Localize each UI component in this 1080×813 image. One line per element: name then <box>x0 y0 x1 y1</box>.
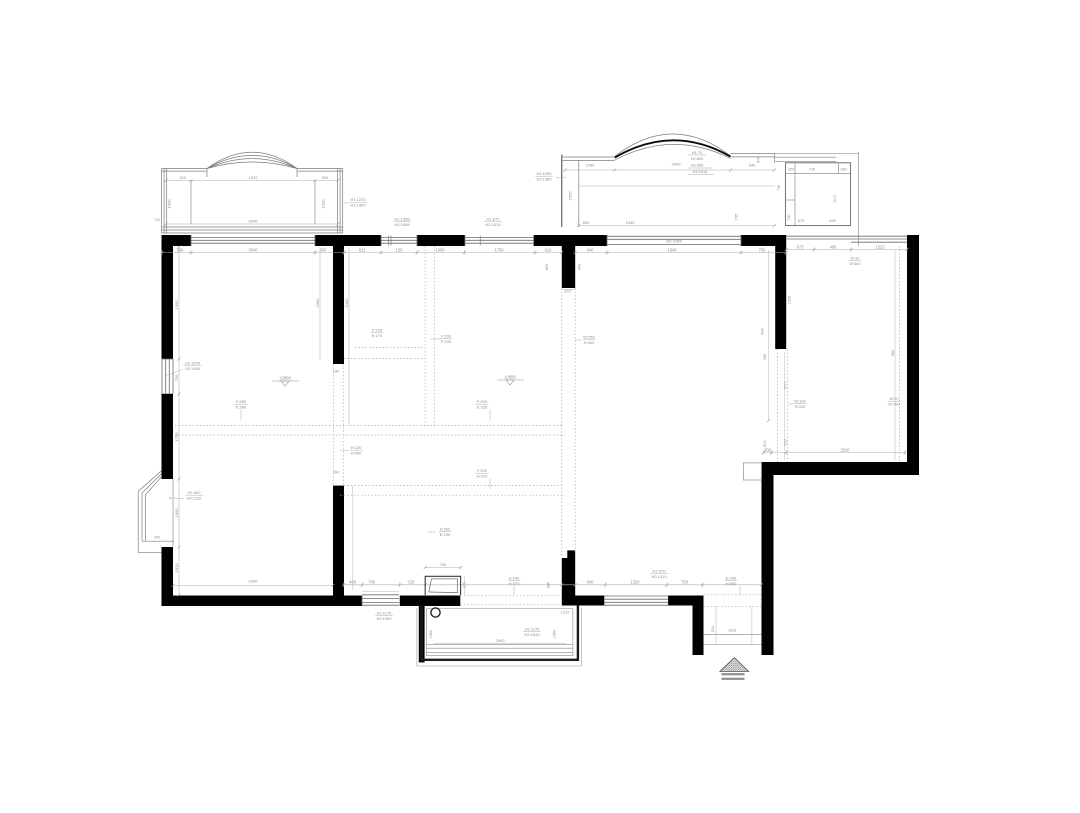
svg-text:613: 613 <box>763 441 767 447</box>
svg-text:300: 300 <box>320 247 328 252</box>
svg-text:W:30: W:30 <box>850 256 860 261</box>
svg-text:H3:980: H3:980 <box>691 163 704 168</box>
svg-text:H2:1300: H2:1300 <box>185 366 201 371</box>
svg-text:750: 750 <box>681 580 689 585</box>
svg-text:1390: 1390 <box>788 296 792 304</box>
svg-text:H2:1540: H2:1540 <box>524 632 540 637</box>
svg-text:611: 611 <box>359 247 366 252</box>
svg-text:673: 673 <box>757 157 761 163</box>
svg-text:H:320: H:320 <box>477 474 488 479</box>
svg-text:H1:970: H1:970 <box>653 569 667 574</box>
svg-text:H:370: H:370 <box>509 581 520 586</box>
svg-text:750: 750 <box>174 374 179 381</box>
svg-text:1000: 1000 <box>321 199 326 209</box>
svg-text:1112: 1112 <box>833 195 837 203</box>
svg-text:H1:1223: H1:1223 <box>350 197 366 202</box>
svg-text:H:325: H:325 <box>795 404 806 409</box>
svg-text:F:200: F:200 <box>477 468 488 473</box>
svg-text:F:230: F:230 <box>441 339 452 344</box>
svg-text:2940: 2940 <box>496 638 506 643</box>
svg-text:640: 640 <box>587 247 595 252</box>
svg-text:1810: 1810 <box>174 563 179 573</box>
svg-text:900: 900 <box>578 264 582 270</box>
svg-text:650: 650 <box>583 220 590 225</box>
svg-text:2640: 2640 <box>672 162 682 167</box>
svg-text:800: 800 <box>545 264 549 270</box>
svg-text:F:200: F:200 <box>477 399 488 404</box>
svg-text:1950: 1950 <box>553 630 557 638</box>
svg-text:200: 200 <box>333 470 340 475</box>
svg-text:1650: 1650 <box>568 191 573 201</box>
svg-text:H:400: H:400 <box>351 451 362 456</box>
svg-text:F:200: F:200 <box>441 334 452 339</box>
svg-text:W:300: W:300 <box>888 402 900 407</box>
svg-text:H:580: H:580 <box>726 581 737 586</box>
svg-text:H1:1170: H1:1170 <box>377 611 393 616</box>
svg-text:F:220: F:220 <box>372 328 383 333</box>
svg-text:150: 150 <box>396 247 404 252</box>
svg-text:H1:900: H1:900 <box>188 490 202 495</box>
svg-text:H2:1360: H2:1360 <box>350 203 366 208</box>
svg-text:1790: 1790 <box>174 432 179 442</box>
svg-text:H2:1360: H2:1360 <box>536 177 552 182</box>
svg-text:739: 739 <box>777 185 781 191</box>
svg-text:710: 710 <box>809 168 815 172</box>
svg-text:W1:2950: W1:2950 <box>666 239 683 244</box>
svg-text:280: 280 <box>840 168 846 172</box>
svg-text:H:200: H:200 <box>440 527 451 532</box>
svg-text:673: 673 <box>798 219 804 223</box>
svg-text:1310: 1310 <box>561 611 569 615</box>
svg-text:E:325: E:325 <box>477 405 488 410</box>
svg-text:2400: 2400 <box>344 298 349 308</box>
svg-text:H4:1318: H4:1318 <box>693 169 708 174</box>
svg-text:H:220: H:220 <box>351 445 362 450</box>
svg-text:300: 300 <box>154 536 160 540</box>
svg-text:900: 900 <box>322 175 329 180</box>
svg-text:1118: 1118 <box>728 629 736 633</box>
svg-text:1940: 1940 <box>626 220 636 225</box>
svg-text:F:280: F:280 <box>236 399 247 404</box>
svg-text:3040: 3040 <box>249 219 259 224</box>
svg-text:H2:1510: H2:1510 <box>485 222 501 227</box>
svg-text:H1:670: H1:670 <box>487 217 501 222</box>
svg-text:1000: 1000 <box>167 199 172 209</box>
svg-text:H2:1950: H2:1950 <box>376 616 392 621</box>
svg-text:1970: 1970 <box>249 175 259 180</box>
svg-text:H:400: H:400 <box>584 340 595 345</box>
svg-text:1400: 1400 <box>174 508 179 518</box>
svg-text:E:240: E:240 <box>726 576 737 581</box>
svg-text:910: 910 <box>180 175 187 180</box>
svg-text:W:400: W:400 <box>849 261 861 266</box>
svg-text:H1:1200: H1:1200 <box>185 361 201 366</box>
svg-text:730: 730 <box>787 214 791 220</box>
svg-text:E:170: E:170 <box>372 333 383 338</box>
svg-text:±2900: ±2900 <box>279 376 291 381</box>
svg-text:E:280: E:280 <box>236 405 247 410</box>
svg-text:610: 610 <box>545 247 553 252</box>
svg-text:1940: 1940 <box>667 247 677 252</box>
svg-text:W:100: W:100 <box>794 399 806 404</box>
svg-text:940: 940 <box>749 162 756 167</box>
svg-text:1950: 1950 <box>429 630 433 638</box>
svg-text:698: 698 <box>829 219 835 223</box>
svg-text:H2:2110: H2:2110 <box>187 496 203 501</box>
svg-text:720: 720 <box>407 580 415 585</box>
svg-text:320: 320 <box>788 168 794 172</box>
svg-text:2390: 2390 <box>249 579 259 584</box>
svg-text:H:140: H:140 <box>509 576 520 581</box>
svg-text:H2:1968: H2:1968 <box>394 222 410 227</box>
svg-text:1050: 1050 <box>586 162 596 167</box>
svg-text:E:190: E:190 <box>440 532 451 537</box>
svg-text:2360: 2360 <box>315 298 320 308</box>
svg-text:735: 735 <box>734 213 739 220</box>
svg-text:W:20: W:20 <box>889 396 899 401</box>
svg-text:300: 300 <box>764 447 772 452</box>
svg-text:723: 723 <box>154 218 160 222</box>
svg-text:H1:1090: H1:1090 <box>536 171 552 176</box>
svg-text:700: 700 <box>368 580 376 585</box>
svg-text:H2:820: H2:820 <box>691 156 704 161</box>
svg-text:640: 640 <box>587 580 595 585</box>
svg-text:1300: 1300 <box>174 300 179 310</box>
svg-text:1750: 1750 <box>494 247 504 252</box>
svg-text:406: 406 <box>830 244 838 249</box>
svg-text:980: 980 <box>890 349 895 356</box>
svg-text:3040: 3040 <box>248 247 258 252</box>
svg-text:H1:1358: H1:1358 <box>394 217 410 222</box>
svg-text:H1:70: H1:70 <box>692 150 703 155</box>
svg-text:800: 800 <box>547 582 551 588</box>
svg-text:W:250: W:250 <box>583 335 595 340</box>
svg-text:1000: 1000 <box>435 247 445 252</box>
svg-text:700: 700 <box>440 562 447 567</box>
svg-text:1523: 1523 <box>875 244 885 249</box>
svg-text:2020: 2020 <box>840 447 850 452</box>
svg-text:1320: 1320 <box>630 580 640 585</box>
svg-text:H1:1170: H1:1170 <box>525 627 541 632</box>
svg-text:±2880: ±2880 <box>504 375 516 380</box>
svg-text:H2:1310: H2:1310 <box>651 574 667 579</box>
svg-text:300: 300 <box>763 354 767 360</box>
svg-text:230: 230 <box>333 369 340 374</box>
svg-text:673: 673 <box>797 244 805 249</box>
svg-text:513: 513 <box>711 626 715 632</box>
svg-text:900: 900 <box>761 328 765 334</box>
svg-text:750: 750 <box>759 247 767 252</box>
